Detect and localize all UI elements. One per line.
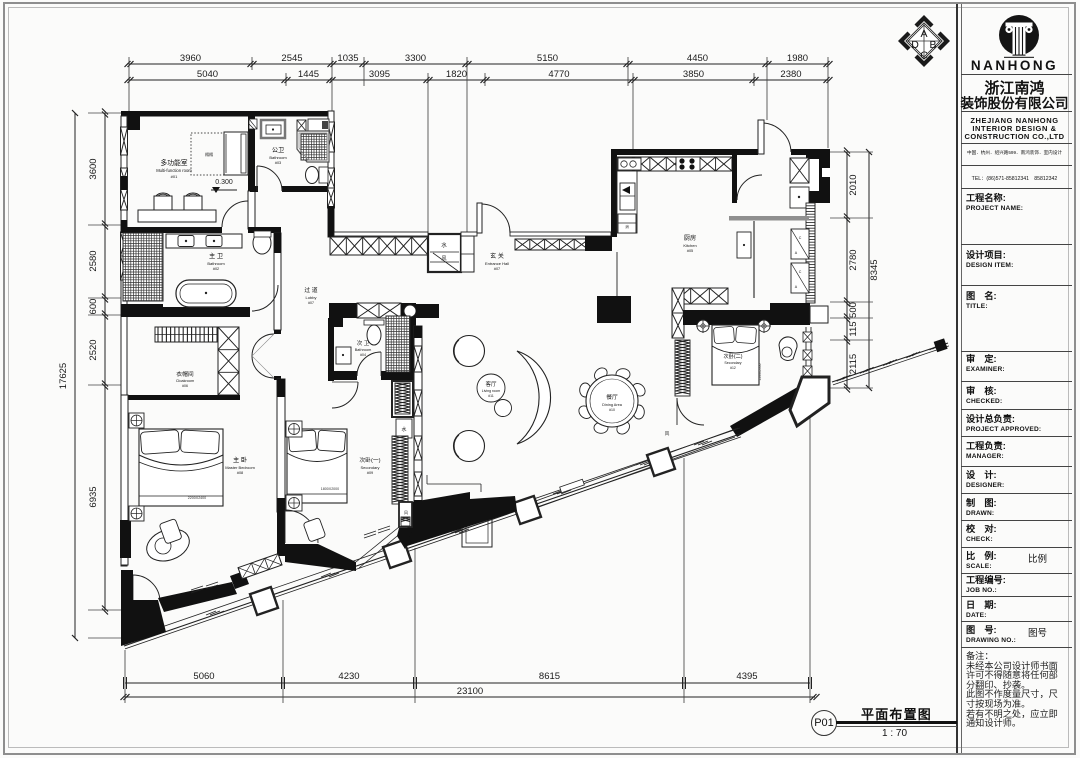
- svg-text:4230: 4230: [338, 671, 359, 682]
- svg-text:Entrance Hall: Entrance Hall: [485, 261, 509, 266]
- svg-text:#06: #06: [182, 384, 188, 388]
- svg-text:主 卧: 主 卧: [233, 456, 247, 464]
- svg-text:C: C: [799, 236, 802, 240]
- svg-text:8615: 8615: [539, 671, 560, 682]
- svg-text:#09: #09: [367, 471, 373, 475]
- svg-text:次卧(一): 次卧(一): [359, 456, 380, 464]
- svg-text:餐厅: 餐厅: [606, 393, 618, 401]
- svg-text:1035: 1035: [337, 53, 358, 64]
- svg-text:C: C: [799, 270, 802, 274]
- svg-text:23100: 23100: [457, 686, 483, 697]
- svg-text:0.300: 0.300: [215, 179, 233, 186]
- svg-text:B: B: [929, 39, 936, 51]
- svg-text:2200X2400: 2200X2400: [188, 496, 206, 500]
- svg-text:榻榻: 榻榻: [205, 151, 213, 157]
- svg-text:次卧(二): 次卧(二): [723, 352, 742, 360]
- svg-text:风: 风: [404, 510, 408, 515]
- svg-text:Master Bedroom: Master Bedroom: [225, 465, 255, 470]
- svg-text:#03: #03: [275, 161, 281, 165]
- svg-text:2780: 2780: [848, 249, 859, 270]
- svg-text:6935: 6935: [88, 486, 99, 507]
- svg-text:4450: 4450: [687, 53, 708, 64]
- svg-text:#12: #12: [730, 366, 736, 370]
- svg-text:2115: 2115: [848, 354, 859, 374]
- svg-text:3300: 3300: [405, 53, 426, 64]
- svg-text:次 卫: 次 卫: [357, 339, 370, 347]
- svg-text:Living room: Living room: [482, 389, 501, 393]
- svg-text:1820: 1820: [446, 69, 467, 80]
- svg-text:1500X2000: 1500X2000: [758, 363, 762, 380]
- svg-text:500: 500: [848, 302, 859, 318]
- svg-text:Secondary: Secondary: [724, 361, 741, 365]
- svg-text:客厅: 客厅: [485, 380, 497, 388]
- svg-text:#07: #07: [308, 301, 314, 305]
- svg-text:3850: 3850: [683, 69, 704, 80]
- svg-text:A: A: [920, 28, 927, 40]
- svg-text:#07: #07: [494, 267, 500, 271]
- svg-text:2545: 2545: [281, 53, 302, 64]
- svg-text:Secondary: Secondary: [360, 465, 379, 470]
- svg-text:8345: 8345: [869, 259, 880, 280]
- svg-text:衣帽间: 衣帽间: [176, 370, 194, 378]
- svg-text:C: C: [920, 50, 928, 62]
- svg-text:5150: 5150: [537, 53, 558, 64]
- svg-text:水: 水: [441, 241, 447, 249]
- svg-text:Multi-function room: Multi-function room: [156, 168, 192, 173]
- svg-text:5060: 5060: [193, 671, 214, 682]
- svg-text:Kitchen: Kitchen: [683, 243, 696, 248]
- svg-text:公卫: 公卫: [272, 147, 284, 154]
- svg-text:玄 关: 玄 关: [490, 252, 504, 260]
- svg-text:2520: 2520: [88, 339, 99, 360]
- svg-text:#01: #01: [171, 174, 178, 179]
- svg-text:3095: 3095: [369, 69, 390, 80]
- svg-text:#02: #02: [213, 267, 219, 271]
- svg-text:1800X2000: 1800X2000: [321, 487, 339, 491]
- svg-text:1445: 1445: [298, 69, 319, 80]
- svg-text:多功能室: 多功能室: [160, 158, 187, 167]
- svg-text:Bathroom: Bathroom: [207, 261, 225, 266]
- svg-text:Dining Area: Dining Area: [602, 403, 623, 407]
- svg-text:Bathroom: Bathroom: [355, 348, 371, 352]
- svg-text:4395: 4395: [736, 671, 757, 682]
- svg-text:#05: #05: [687, 249, 693, 253]
- svg-text:D: D: [911, 39, 919, 51]
- svg-text:#04: #04: [360, 353, 366, 357]
- svg-text:#08: #08: [237, 471, 243, 475]
- svg-text:2580: 2580: [88, 250, 99, 271]
- svg-text:过 道: 过 道: [304, 286, 317, 294]
- svg-text:3600: 3600: [88, 158, 99, 179]
- svg-text:600: 600: [88, 299, 99, 315]
- svg-text:3960: 3960: [180, 53, 201, 64]
- svg-text:1980: 1980: [787, 53, 808, 64]
- svg-text:17625: 17625: [58, 363, 69, 389]
- svg-text:5040: 5040: [197, 69, 218, 80]
- svg-text:Cloakroom: Cloakroom: [176, 379, 194, 383]
- svg-text:4770: 4770: [548, 69, 569, 80]
- svg-text:2010: 2010: [848, 174, 859, 195]
- svg-text:水: 水: [401, 426, 406, 433]
- svg-text:消: 消: [625, 224, 629, 229]
- svg-text:风: 风: [665, 431, 670, 437]
- svg-text:主 卫: 主 卫: [209, 252, 223, 260]
- svg-text:115: 115: [848, 321, 859, 336]
- svg-text:Lobby: Lobby: [306, 295, 317, 300]
- svg-text:#11: #11: [488, 394, 494, 398]
- svg-text:Bathroom: Bathroom: [269, 155, 287, 160]
- svg-text:#10: #10: [609, 408, 615, 412]
- svg-text:2380: 2380: [780, 69, 801, 80]
- svg-text:厨房: 厨房: [684, 234, 696, 242]
